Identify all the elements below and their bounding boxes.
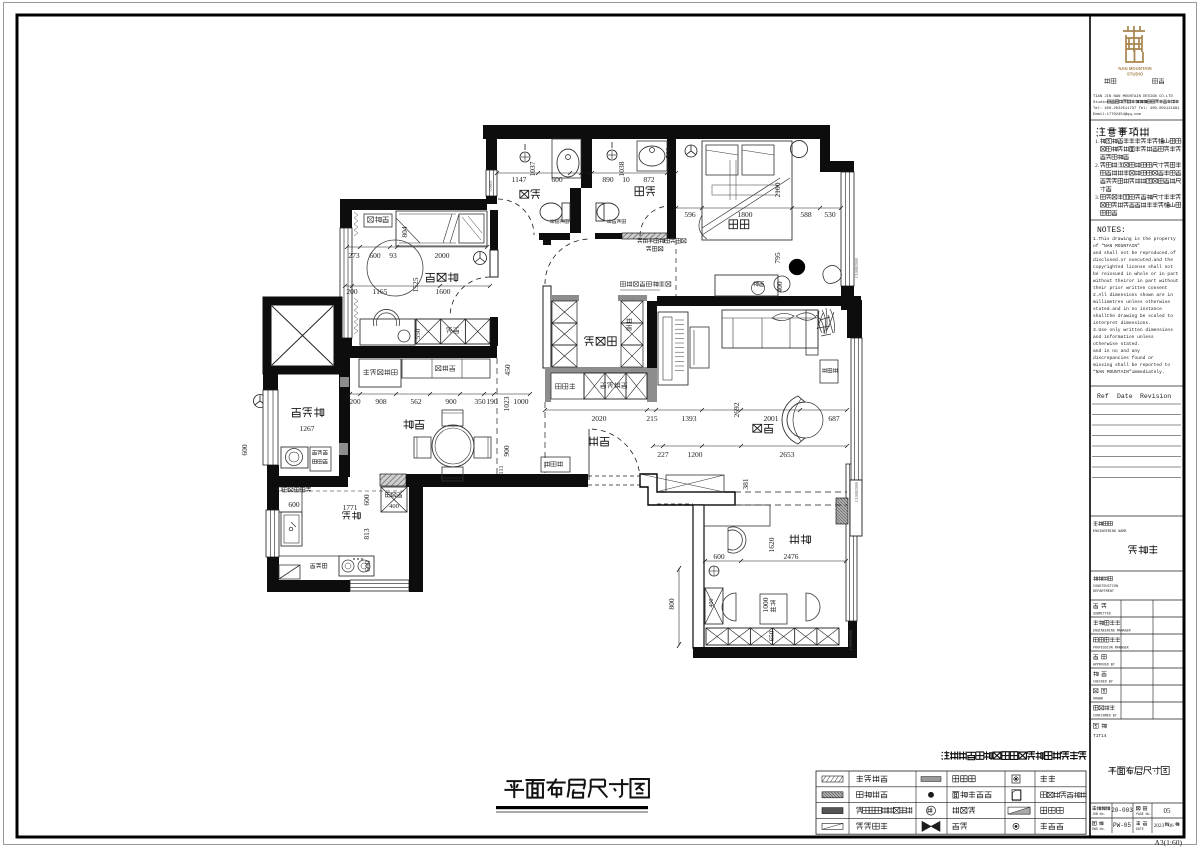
svg-text:600: 600 <box>288 500 300 509</box>
svg-text:600: 600 <box>363 560 372 572</box>
svg-text:1267: 1267 <box>300 424 315 433</box>
svg-text:2000: 2000 <box>435 251 450 260</box>
svg-text:and information unless: and information unless <box>1093 334 1154 340</box>
svg-text:NAN MOUNTAIN: NAN MOUNTAIN <box>1118 66 1151 71</box>
svg-text:T1T14: T1T14 <box>1093 733 1107 739</box>
svg-text:NOTES:: NOTES: <box>1097 226 1126 235</box>
svg-text:500: 500 <box>664 147 673 159</box>
svg-text:CHECKED BY: CHECKED BY <box>1093 680 1113 684</box>
svg-text:A3(1:60): A3(1:60) <box>1155 838 1183 847</box>
svg-text:without theiror in part withou: without theiror in part without <box>1093 278 1179 284</box>
svg-text:111: 111 <box>498 465 505 474</box>
svg-text:795: 795 <box>773 252 782 264</box>
svg-text:1023: 1023 <box>502 396 511 411</box>
svg-text:20-003: 20-003 <box>1111 807 1133 814</box>
svg-text:PW-05: PW-05 <box>1113 822 1131 829</box>
svg-text:APPROVED BY: APPROVED BY <box>1093 663 1115 667</box>
svg-text:350: 350 <box>474 397 486 406</box>
svg-text:2020: 2020 <box>592 414 607 423</box>
svg-text:200: 200 <box>346 287 358 296</box>
svg-text:Email:17702454@qq.com: Email:17702454@qq.com <box>1093 112 1142 117</box>
svg-text:and shall not be reproduced.of: and shall not be reproduced.of <box>1093 250 1176 256</box>
svg-text:Revision: Revision <box>1140 393 1171 400</box>
svg-text:1393: 1393 <box>682 414 697 423</box>
svg-text:2100: 2100 <box>773 182 782 197</box>
svg-text:C1008/2000: C1008/2000 <box>854 482 859 502</box>
svg-text:600: 600 <box>551 175 563 184</box>
svg-text:ENGINEERING MANAGER: ENGINEERING MANAGER <box>1093 629 1131 633</box>
svg-text:2.: 2. <box>1095 163 1100 169</box>
svg-text:2653: 2653 <box>780 450 795 459</box>
svg-text:3.: 3. <box>1095 195 1100 201</box>
svg-text:273: 273 <box>348 251 360 260</box>
svg-text:687: 687 <box>828 414 840 423</box>
svg-text:PROFESSION MANAGER: PROFESSION MANAGER <box>1093 646 1129 650</box>
svg-text:1165: 1165 <box>373 287 388 296</box>
svg-text:2476: 2476 <box>784 552 799 561</box>
svg-text:discrepancies found or: discrepancies found or <box>1093 355 1154 361</box>
svg-text:600: 600 <box>369 251 381 260</box>
svg-text:C1008/2000: C1008/2000 <box>854 258 859 278</box>
svg-text:1620: 1620 <box>767 537 776 552</box>
svg-text:C0806/1000: C0806/1000 <box>848 630 853 650</box>
svg-text:2.All dimensions shown are in: 2.All dimensions shown are in <box>1093 292 1173 298</box>
svg-text:3.Use only written dimensions: 3.Use only written dimensions <box>1093 327 1173 333</box>
svg-text:2023: 2023 <box>1154 823 1165 829</box>
svg-text:DRAWN: DRAWN <box>1093 697 1103 701</box>
svg-text:DWG No.: DWG No. <box>1092 827 1105 831</box>
svg-text:their prior written consent: their prior written consent <box>1093 285 1168 291</box>
svg-text:600: 600 <box>240 444 249 456</box>
svg-text:1800: 1800 <box>738 210 753 219</box>
svg-text:06: 06 <box>1168 823 1174 829</box>
svg-text:800: 800 <box>667 598 676 610</box>
svg-text:908: 908 <box>375 397 387 406</box>
svg-text:C0605: C0605 <box>488 181 493 192</box>
svg-text:and in no and any: and in no and any <box>1093 348 1140 354</box>
svg-text:be reissued in whole or in par: be reissued in whole or in part <box>1093 271 1179 277</box>
svg-text:Date: Date <box>1117 393 1133 400</box>
svg-text:1000: 1000 <box>514 397 529 406</box>
svg-text:“NAN MOUNTAIN”immediately.: “NAN MOUNTAIN”immediately. <box>1093 369 1165 375</box>
svg-text:900: 900 <box>445 397 457 406</box>
svg-text:1147: 1147 <box>512 175 527 184</box>
svg-text:562: 562 <box>410 397 422 406</box>
svg-text:STUDIO: STUDIO <box>1127 72 1144 77</box>
svg-text:shallthe drawing be scaled to: shallthe drawing be scaled to <box>1093 313 1173 319</box>
svg-text:2692: 2692 <box>732 402 741 417</box>
svg-text:05: 05 <box>1164 807 1172 815</box>
svg-text:600: 600 <box>362 494 371 506</box>
svg-text:600: 600 <box>713 552 725 561</box>
svg-text:ENGINEERING NAME: ENGINEERING NAME <box>1093 530 1127 534</box>
svg-text:PAGE No.: PAGE No. <box>1136 812 1151 816</box>
svg-text:588: 588 <box>800 210 812 219</box>
svg-text:DEPARTMENT: DEPARTMENT <box>1093 590 1114 594</box>
svg-text:millimetres unless otherwise: millimetres unless otherwise <box>1093 299 1170 305</box>
svg-text:1525: 1525 <box>411 277 420 292</box>
svg-text:596: 596 <box>684 210 696 219</box>
svg-text:650: 650 <box>768 630 776 641</box>
svg-text:530: 530 <box>824 210 836 219</box>
svg-text:1.: 1. <box>1095 139 1100 145</box>
svg-text:813: 813 <box>362 528 371 540</box>
svg-text:2001: 2001 <box>764 414 779 423</box>
svg-text:227: 227 <box>657 450 669 459</box>
svg-text:TIAN JIN NAN MOUNTAIN DESIGN C: TIAN JIN NAN MOUNTAIN DESIGN CO.LTD <box>1093 95 1173 99</box>
svg-text:CONFIRMED BY: CONFIRMED BY <box>1093 714 1117 718</box>
svg-text:550: 550 <box>414 328 422 339</box>
svg-text:stated.and in no instance: stated.and in no instance <box>1093 306 1162 312</box>
svg-text:1037: 1037 <box>528 161 537 176</box>
svg-text:1771: 1771 <box>343 503 358 512</box>
svg-text:190: 190 <box>486 397 498 406</box>
svg-text:copyrighted license shall not: copyrighted license shall not <box>1093 264 1173 270</box>
svg-text:otherwise stated.: otherwise stated. <box>1093 341 1140 347</box>
svg-text:900: 900 <box>502 445 511 457</box>
svg-text:93: 93 <box>389 251 397 260</box>
svg-text:interpret dimensions.: interpret dimensions. <box>1093 320 1151 326</box>
svg-text:1000: 1000 <box>761 597 770 612</box>
svg-text:missing shall be reported to: missing shall be reported to <box>1093 362 1170 368</box>
svg-text:of “NAN MOUNTAIN”: of “NAN MOUNTAIN” <box>1093 243 1140 249</box>
svg-text:JOB No.: JOB No. <box>1092 812 1105 816</box>
svg-text:804: 804 <box>400 226 409 238</box>
svg-text:1200: 1200 <box>688 450 703 459</box>
svg-text:215: 215 <box>646 414 658 423</box>
svg-text:SUBMITTED: SUBMITTED <box>1093 612 1111 616</box>
svg-text:890: 890 <box>602 175 614 184</box>
svg-text:400: 400 <box>709 599 715 608</box>
svg-text:872: 872 <box>643 175 655 184</box>
svg-text:CONSTRUCTION: CONSTRUCTION <box>1093 585 1118 589</box>
svg-text:400: 400 <box>389 503 399 510</box>
svg-text:Ref: Ref <box>1097 393 1109 400</box>
svg-text:1038: 1038 <box>617 161 626 176</box>
svg-text:200: 200 <box>349 397 361 406</box>
svg-text:Tel: 400-2022511737 Tel: 400-0: Tel: 400-2022511737 Tel: 400-002121981 <box>1093 106 1180 111</box>
svg-text:1600: 1600 <box>436 287 451 296</box>
svg-text:disclosed.or executed.and the: disclosed.or executed.and the <box>1093 257 1173 263</box>
svg-text:400: 400 <box>775 281 784 293</box>
svg-text:Studio:: Studio: <box>1093 100 1109 105</box>
svg-text:450: 450 <box>503 364 512 376</box>
svg-text:1.This drawing is the property: 1.This drawing is the property <box>1093 236 1176 242</box>
svg-text:DATE: DATE <box>1136 827 1144 831</box>
svg-text:381: 381 <box>741 478 750 490</box>
